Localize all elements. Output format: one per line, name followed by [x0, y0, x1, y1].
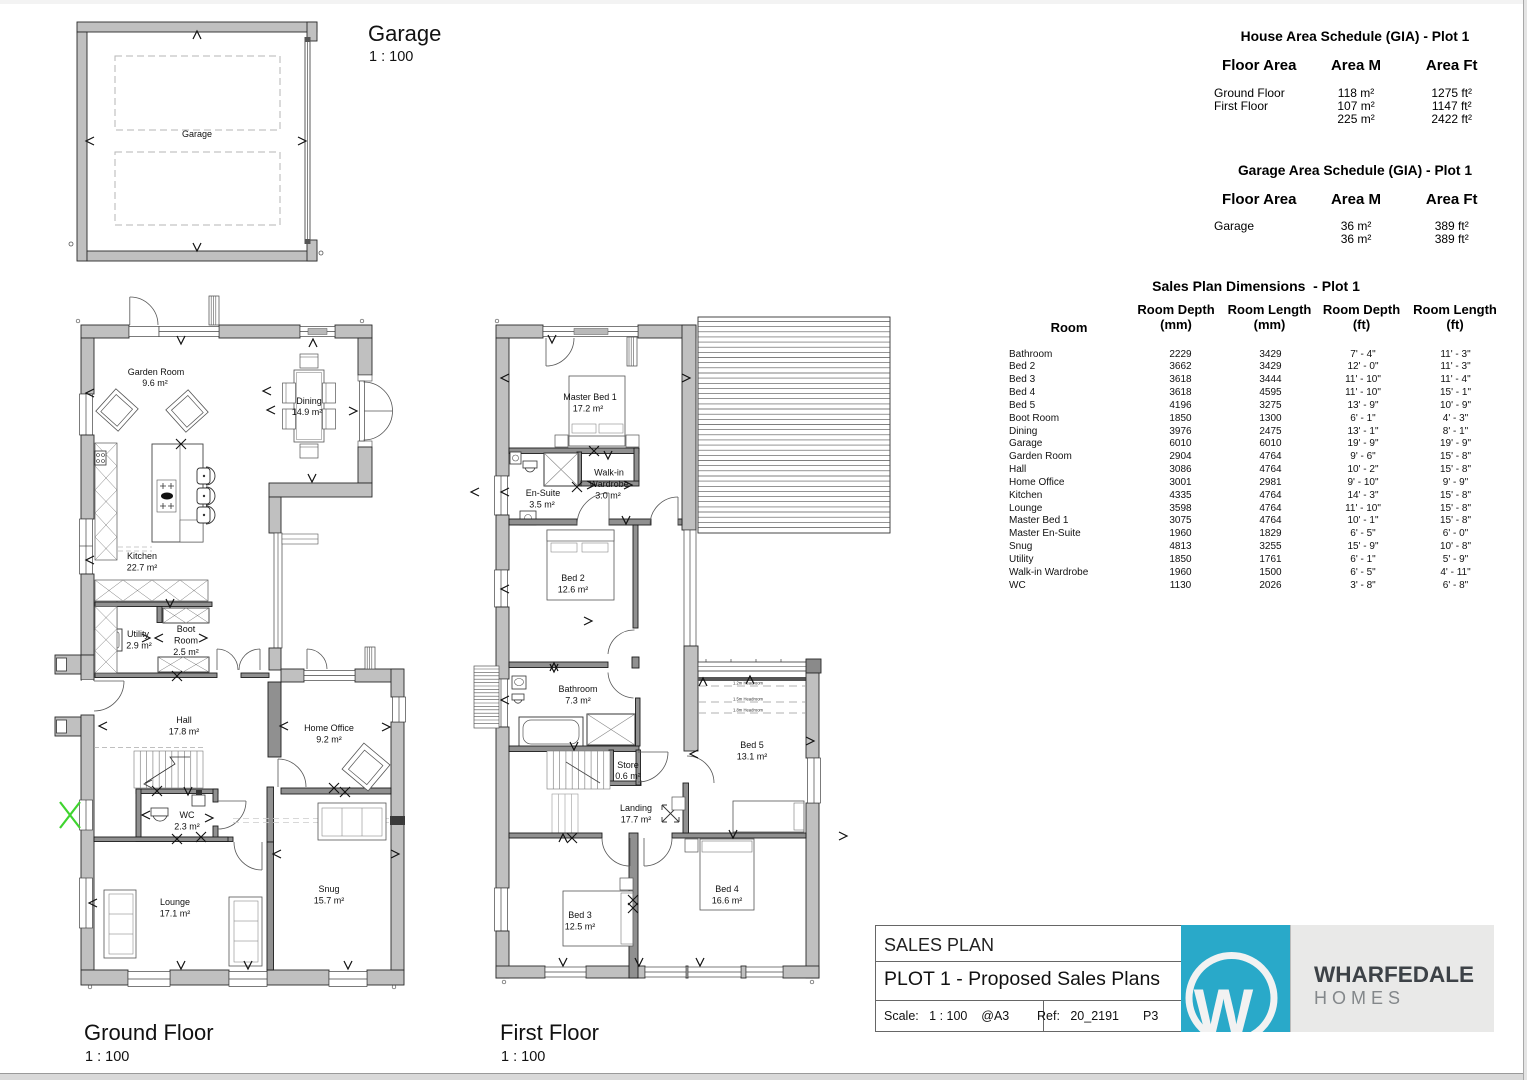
svg-text:2.5 m²: 2.5 m² — [173, 647, 199, 657]
svg-text:First Floor: First Floor — [500, 1020, 599, 1045]
svg-text:14.9 m²: 14.9 m² — [292, 407, 323, 417]
svg-text:0.6 m²: 0.6 m² — [615, 771, 641, 781]
svg-text:Home Office: Home Office — [304, 723, 354, 733]
svg-text:Ground Floor: Ground Floor — [84, 1020, 214, 1045]
svg-text:9.6 m²: 9.6 m² — [142, 378, 168, 388]
svg-text:Garage: Garage — [368, 21, 441, 46]
svg-text:2.9 m²: 2.9 m² — [126, 641, 152, 651]
svg-text:12.6 m²: 12.6 m² — [558, 585, 589, 595]
svg-text:Boot: Boot — [177, 624, 196, 634]
svg-text:En-Suite: En-Suite — [526, 488, 561, 498]
svg-text:Bed 4: Bed 4 — [715, 884, 739, 894]
svg-text:15.7 m²: 15.7 m² — [314, 896, 345, 906]
svg-text:17.7 m²: 17.7 m² — [621, 815, 652, 825]
svg-text:1.2m Headroom: 1.2m Headroom — [733, 681, 764, 686]
svg-text:13.1 m²: 13.1 m² — [737, 752, 768, 762]
svg-text:17.8 m²: 17.8 m² — [169, 727, 200, 737]
svg-text:Store: Store — [617, 760, 639, 770]
svg-text:Snug: Snug — [318, 884, 339, 894]
svg-text:16.6 m²: 16.6 m² — [712, 896, 743, 906]
svg-text:9.2 m²: 9.2 m² — [316, 735, 342, 745]
svg-text:Kitchen: Kitchen — [127, 551, 157, 561]
svg-text:Bathroom: Bathroom — [558, 684, 597, 694]
svg-text:7.3 m²: 7.3 m² — [565, 696, 591, 706]
svg-text:Bed 2: Bed 2 — [561, 573, 585, 583]
svg-text:Hall: Hall — [176, 715, 192, 725]
svg-text:1 : 100: 1 : 100 — [369, 49, 413, 65]
svg-text:2.3 m²: 2.3 m² — [174, 822, 200, 832]
svg-text:Master Bed 1: Master Bed 1 — [563, 392, 617, 402]
svg-text:WC: WC — [180, 810, 195, 820]
svg-text:12.5 m²: 12.5 m² — [565, 922, 596, 932]
svg-text:Bed 3: Bed 3 — [568, 910, 592, 920]
svg-text:Bed 5: Bed 5 — [740, 740, 764, 750]
svg-text:Dining: Dining — [296, 396, 322, 406]
svg-text:W: W — [1194, 977, 1254, 1032]
svg-text:Room: Room — [174, 636, 198, 646]
svg-text:1.8m Headroom: 1.8m Headroom — [733, 708, 764, 713]
svg-text:17.2 m²: 17.2 m² — [573, 404, 604, 414]
svg-text:22.7 m²: 22.7 m² — [127, 563, 158, 573]
svg-text:17.1 m²: 17.1 m² — [160, 909, 191, 919]
svg-text:3.5 m²: 3.5 m² — [529, 500, 555, 510]
svg-text:1 : 100: 1 : 100 — [501, 1049, 545, 1065]
svg-text:Utility: Utility — [127, 629, 149, 639]
svg-text:3.0 m²: 3.0 m² — [595, 491, 621, 501]
svg-text:Walk-in: Walk-in — [594, 468, 624, 478]
svg-text:1 : 100: 1 : 100 — [85, 1049, 129, 1065]
svg-text:1.5m Headroom: 1.5m Headroom — [733, 697, 764, 702]
svg-text:Garden Room: Garden Room — [128, 367, 185, 377]
svg-text:Lounge: Lounge — [160, 897, 190, 907]
svg-text:Landing: Landing — [620, 803, 652, 813]
svg-text:Wardrobe: Wardrobe — [589, 479, 628, 489]
